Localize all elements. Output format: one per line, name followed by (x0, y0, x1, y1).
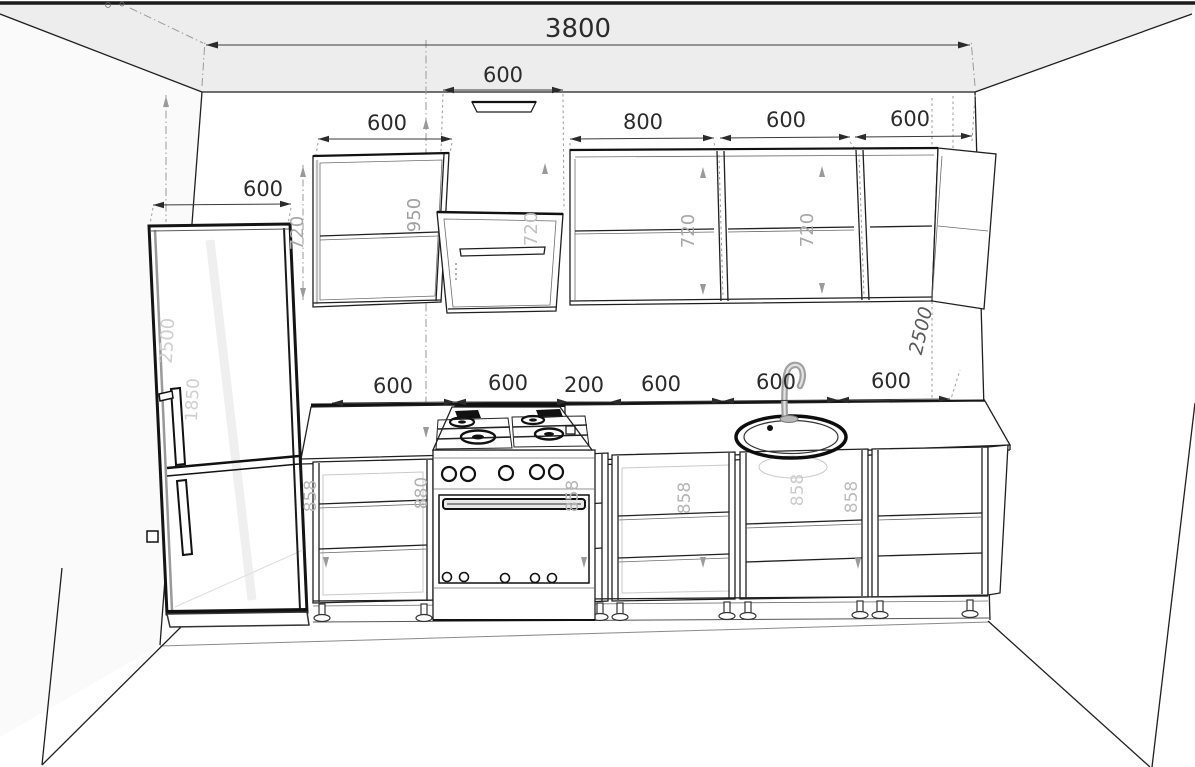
dim-label-base-6: 600 (871, 369, 911, 393)
dim-label-base-height-3: 858 (675, 482, 695, 514)
base-cabinet-3 (872, 445, 1008, 597)
dim-upper-4: 600 (855, 107, 972, 140)
dim-label-fridge-width: 600 (243, 177, 283, 201)
hood-cabinet (437, 212, 563, 313)
dim-upper-1: 600 (318, 111, 452, 142)
dim-label-height-cab5: 720 (797, 213, 818, 247)
dim-label-upper-1: 600 (367, 111, 407, 135)
dim-base-2: 600 (455, 371, 568, 405)
dim-upper-3: 600 (720, 108, 850, 141)
base-cabinets (313, 445, 1008, 622)
dim-label-base-2: 600 (488, 371, 528, 395)
dim-upper-2: 800 (570, 110, 714, 142)
sink-cabinet (740, 449, 868, 599)
dim-label-total-width: 3800 (545, 14, 611, 44)
dim-label-upper-4: 600 (890, 107, 930, 131)
dim-base-1: 600 (332, 374, 455, 406)
dim-label-base-height-880: 880 (412, 477, 432, 509)
dim-label-height-950: 950 (404, 198, 425, 232)
dim-label-height-hood: 720 (521, 212, 542, 246)
dim-label-base-4: 600 (641, 372, 681, 396)
base-cabinet-2 (612, 452, 735, 601)
kitchen-cad-screenshot: 3800 600 600 800 600 (0, 0, 1195, 767)
dim-label-base-1: 600 (373, 374, 413, 398)
dim-label-base-5: 600 (756, 370, 796, 394)
wall-cabinets-right (570, 148, 996, 309)
dim-label-base-height-1: 858 (301, 480, 321, 512)
dim-label-base-3: 200 (564, 373, 604, 397)
dim-base-5: 600 (723, 370, 838, 404)
fridge-plinth (167, 612, 309, 627)
wall-corner-right (1152, 403, 1195, 767)
dim-label-base-height-2: 858 (563, 480, 583, 512)
dim-base-4: 600 (610, 372, 723, 405)
dim-label-base-height-4: 858 (788, 474, 808, 506)
gas-range (433, 407, 595, 620)
dim-label-hood-width: 600 (483, 63, 523, 87)
kitchen-elevation-drawing: 3800 600 600 800 600 (0, 0, 1195, 767)
dim-label-height-cab4: 720 (678, 214, 699, 248)
dim-label-fridge-height: 1850 (182, 378, 204, 422)
dim-label-height-left-cab: 720 (287, 216, 308, 250)
dim-label-upper-2: 800 (623, 110, 663, 134)
wall-cabinet-left (313, 153, 449, 307)
dim-label-base-height-5: 858 (842, 481, 862, 513)
dim-label-upper-3: 600 (766, 108, 806, 132)
floor-corner-right (988, 621, 1150, 767)
dim-base-6: 600 (838, 369, 950, 403)
wall-vent (472, 102, 536, 112)
dim-label-wall-height-left: 2500 (156, 317, 179, 364)
refrigerator (147, 224, 309, 627)
